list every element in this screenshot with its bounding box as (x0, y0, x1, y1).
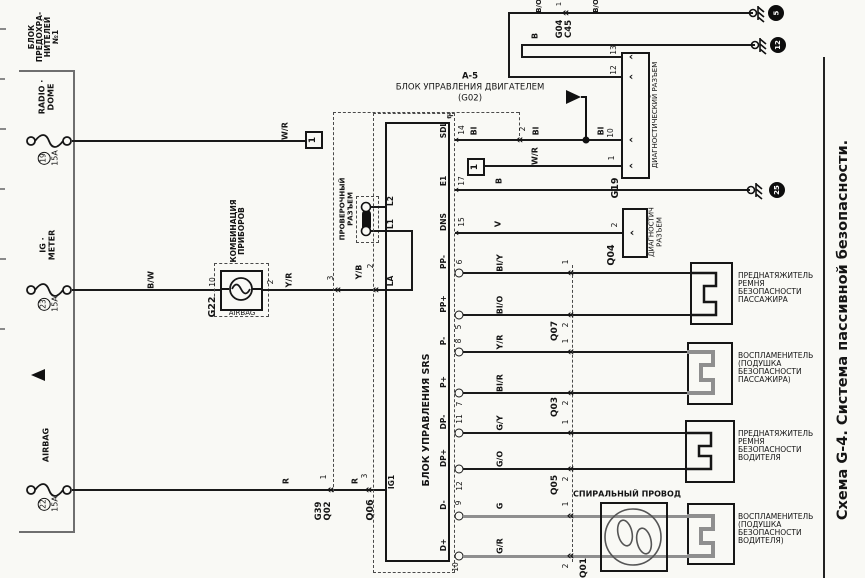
squib-icon (685, 273, 716, 556)
ecu-arrow-icon (566, 90, 586, 139)
ground-icon (748, 6, 767, 199)
spiral-icon (605, 509, 661, 565)
wiring-diagram-page: БЛОКПРЕДОХРА-НИТЕЛЕЙ№1 RADIO ·DOME 1915A… (0, 0, 865, 578)
symbol-layer (0, 0, 865, 578)
fuse-icon (27, 135, 71, 496)
check-connector-icon (362, 203, 372, 236)
airbag-lamp-icon (220, 278, 263, 300)
